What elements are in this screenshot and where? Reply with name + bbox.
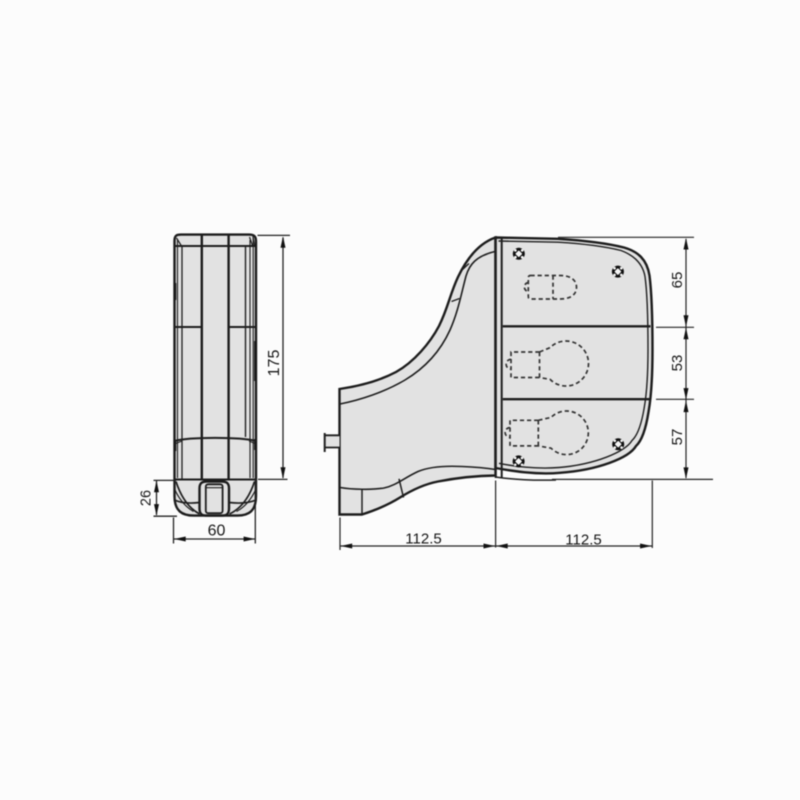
- svg-text:112.5: 112.5: [565, 531, 601, 548]
- svg-text:26: 26: [139, 490, 155, 506]
- svg-text:112.5: 112.5: [405, 530, 441, 547]
- svg-text:53: 53: [669, 355, 686, 372]
- svg-text:65: 65: [669, 272, 686, 289]
- svg-text:60: 60: [208, 523, 226, 540]
- svg-text:175: 175: [266, 350, 283, 377]
- svg-text:57: 57: [669, 429, 686, 446]
